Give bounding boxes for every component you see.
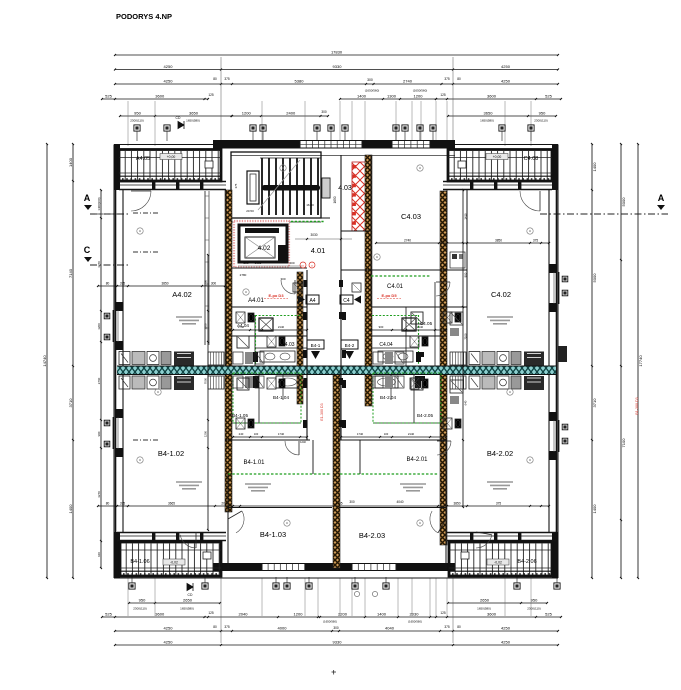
svg-text:3850: 3850	[495, 239, 502, 243]
svg-text:CD: CD	[188, 593, 193, 597]
svg-text:3600: 3600	[487, 612, 497, 617]
svg-text:2300(110): 2300(110)	[133, 607, 146, 611]
svg-text:1200: 1200	[242, 111, 252, 116]
svg-text:2400: 2400	[286, 111, 296, 116]
svg-text:4250: 4250	[164, 64, 174, 69]
svg-text:B4-2.02: B4-2.02	[487, 449, 513, 458]
svg-text:14740: 14740	[42, 355, 47, 367]
svg-text:C: C	[84, 245, 91, 255]
svg-text:375: 375	[533, 239, 539, 243]
svg-text:4040: 4040	[385, 626, 395, 631]
svg-text:B4-1.06: B4-1.06	[130, 559, 149, 565]
svg-text:C4.04: C4.04	[379, 342, 393, 348]
svg-text:A: A	[658, 193, 665, 203]
svg-text:950: 950	[531, 598, 538, 603]
svg-text:375: 375	[120, 502, 126, 506]
svg-text:5000: 5000	[621, 197, 626, 207]
svg-text:950: 950	[139, 598, 146, 603]
svg-text:A4: A4	[309, 298, 315, 304]
svg-text:3600: 3600	[487, 94, 497, 99]
svg-text:4250: 4250	[501, 64, 511, 69]
svg-text:7000: 7000	[204, 377, 208, 384]
svg-text:(1650/560): (1650/560)	[408, 620, 422, 624]
svg-text:375: 375	[224, 625, 230, 629]
svg-text:7100: 7100	[621, 438, 626, 448]
svg-text:1200: 1200	[204, 323, 208, 330]
svg-text:1400: 1400	[68, 504, 73, 514]
svg-text:A4.04: A4.04	[237, 323, 249, 328]
svg-text:4135: 4135	[335, 502, 342, 506]
svg-text:C4.03: C4.03	[401, 212, 421, 221]
svg-text:2200: 2200	[338, 612, 348, 617]
svg-text:525: 525	[105, 612, 112, 617]
svg-text:1200: 1200	[414, 94, 424, 99]
svg-text:+0,00: +0,00	[167, 155, 176, 159]
svg-text:2760: 2760	[97, 377, 101, 384]
svg-text:CD: CD	[176, 116, 181, 120]
svg-text:3600: 3600	[155, 94, 165, 99]
svg-text:2650: 2650	[480, 598, 490, 603]
svg-text:3600: 3600	[155, 612, 165, 617]
svg-text:375: 375	[234, 183, 238, 188]
svg-text:3665: 3665	[168, 502, 175, 506]
svg-text:2300(110): 2300(110)	[130, 119, 143, 123]
svg-text:300: 300	[211, 282, 217, 286]
svg-text:950: 950	[539, 111, 546, 116]
svg-text:16.00: 16.00	[306, 203, 314, 207]
svg-text:525: 525	[105, 94, 112, 99]
svg-text:4000: 4000	[278, 626, 288, 631]
svg-text:3710: 3710	[592, 398, 597, 408]
svg-text:375: 375	[444, 77, 450, 81]
svg-text:80: 80	[106, 282, 110, 286]
svg-text:900: 900	[379, 325, 384, 329]
svg-text:A4.02: A4.02	[172, 290, 192, 299]
svg-text:950: 950	[134, 111, 141, 116]
svg-text:1740: 1740	[357, 432, 364, 436]
svg-text:A4.05: A4.05	[136, 156, 150, 162]
svg-text:2780: 2780	[240, 273, 247, 277]
svg-text:1200: 1200	[204, 430, 208, 437]
svg-text:(1650/560): (1650/560)	[323, 620, 337, 624]
svg-text:A4.03: A4.03	[281, 342, 294, 348]
svg-text:125: 125	[208, 93, 214, 97]
svg-text:80: 80	[213, 77, 217, 81]
svg-text:1400: 1400	[68, 157, 73, 167]
svg-text:300: 300	[321, 110, 327, 114]
svg-text:B1-300 D3: B1-300 D3	[635, 397, 639, 414]
svg-text:17740: 17740	[638, 355, 643, 367]
svg-text:300: 300	[333, 626, 339, 630]
svg-text:B4-1: B4-1	[311, 343, 321, 348]
svg-text:2650: 2650	[183, 598, 193, 603]
svg-text:1650: 1650	[333, 196, 337, 203]
svg-text:940: 940	[97, 552, 101, 557]
svg-text:900: 900	[464, 272, 468, 277]
svg-text:PODORYS 4.NP: PODORYS 4.NP	[116, 12, 172, 21]
svg-text:-0,02: -0,02	[170, 561, 178, 565]
svg-text:4.01: 4.01	[311, 246, 326, 255]
svg-text:4250: 4250	[501, 640, 511, 645]
svg-text:1410: 1410	[464, 213, 468, 220]
svg-text:1740: 1740	[278, 432, 285, 436]
svg-text:B4-1.03: B4-1.03	[260, 530, 286, 539]
svg-text:4250: 4250	[501, 626, 511, 631]
svg-text:C4.01: C4.01	[387, 284, 404, 290]
svg-text:2140: 2140	[278, 325, 285, 329]
svg-text:4.02: 4.02	[258, 245, 271, 252]
svg-text:1300: 1300	[387, 94, 397, 99]
svg-text:640: 640	[464, 400, 468, 405]
svg-text:300: 300	[440, 239, 446, 243]
svg-text:3030: 3030	[310, 233, 317, 237]
svg-text:B4-1.04: B4-1.04	[273, 395, 290, 400]
svg-text:(1650/560): (1650/560)	[413, 89, 428, 93]
svg-text:525: 525	[545, 612, 552, 617]
svg-text:3850: 3850	[453, 502, 460, 506]
svg-text:3270: 3270	[97, 261, 101, 268]
svg-text:2740: 2740	[404, 239, 411, 243]
svg-text:B4-2.04: B4-2.04	[380, 395, 397, 400]
svg-text:C4: C4	[343, 298, 350, 304]
svg-text:80: 80	[106, 502, 110, 506]
svg-text:(1650/560): (1650/560)	[365, 89, 380, 93]
svg-text:4250: 4250	[164, 79, 174, 84]
svg-text:80: 80	[457, 625, 461, 629]
svg-text:B4-2.01: B4-2.01	[406, 457, 428, 463]
svg-text:1400: 1400	[592, 162, 597, 172]
svg-text:200: 200	[289, 261, 294, 265]
svg-text:20.50: 20.50	[246, 209, 254, 213]
svg-text:200: 200	[243, 261, 248, 265]
svg-text:1650(580): 1650(580)	[186, 119, 200, 123]
svg-text:9330: 9330	[333, 640, 343, 645]
svg-text:375: 375	[120, 282, 126, 286]
svg-text:5000: 5000	[592, 273, 597, 283]
svg-text:2300(110): 2300(110)	[534, 119, 547, 123]
svg-text:E-po D5: E-po D5	[381, 293, 397, 298]
svg-text:375: 375	[444, 625, 450, 629]
svg-text:3270: 3270	[97, 491, 101, 498]
svg-text:2300(110): 2300(110)	[527, 607, 540, 611]
svg-text:525: 525	[545, 94, 552, 99]
svg-text:B4-2: B4-2	[345, 343, 355, 348]
svg-text:80: 80	[457, 77, 461, 81]
svg-text:100: 100	[254, 432, 259, 436]
svg-text:1200: 1200	[97, 323, 101, 330]
svg-text:125: 125	[440, 611, 446, 615]
svg-text:1900: 1900	[255, 261, 262, 265]
svg-text:1650(580): 1650(580)	[180, 607, 194, 611]
svg-text:E1-300 D3: E1-300 D3	[320, 403, 324, 420]
svg-text:300: 300	[349, 500, 355, 504]
svg-text:C4.02: C4.02	[491, 290, 511, 299]
svg-text:2780: 2780	[204, 279, 208, 286]
svg-text:375: 375	[496, 502, 502, 506]
svg-text:7100: 7100	[464, 333, 468, 340]
svg-text:B4-1.02: B4-1.02	[158, 449, 184, 458]
svg-text:-0,02: -0,02	[494, 561, 502, 565]
svg-text:4.03: 4.03	[338, 185, 352, 192]
svg-text:17830: 17830	[331, 50, 343, 55]
svg-text:B4-2.05: B4-2.05	[417, 413, 434, 418]
svg-text:C4.08: C4.08	[524, 156, 539, 162]
svg-text:A: A	[84, 193, 91, 203]
svg-text:4040: 4040	[396, 500, 403, 504]
svg-text:80: 80	[213, 625, 217, 629]
svg-text:1200: 1200	[294, 612, 304, 617]
svg-text:7140: 7140	[68, 268, 73, 278]
svg-text:4250: 4250	[501, 79, 511, 84]
svg-text:125: 125	[440, 93, 446, 97]
svg-text:300: 300	[367, 78, 373, 82]
svg-text:B4-2.06: B4-2.06	[517, 559, 536, 565]
svg-text:240: 240	[239, 432, 244, 436]
svg-text:E-po D3: E-po D3	[268, 293, 284, 298]
svg-text:C4.05: C4.05	[420, 321, 433, 326]
svg-text:B4-1.01: B4-1.01	[243, 460, 265, 466]
svg-text:200: 200	[221, 502, 227, 506]
svg-text:3710: 3710	[68, 398, 73, 408]
svg-text:375: 375	[224, 77, 230, 81]
svg-text:3850: 3850	[161, 282, 168, 286]
svg-text:1650(580): 1650(580)	[477, 607, 491, 611]
svg-text:2040: 2040	[239, 612, 249, 617]
svg-text:1240: 1240	[300, 440, 306, 444]
svg-text:4250: 4250	[164, 626, 174, 631]
svg-text:125: 125	[208, 611, 214, 615]
svg-text:1400: 1400	[377, 612, 387, 617]
svg-text:4250: 4250	[164, 640, 174, 645]
svg-text:1400(960): 1400(960)	[97, 197, 101, 210]
svg-text:1400: 1400	[357, 94, 367, 99]
svg-text:+0,00: +0,00	[493, 155, 502, 159]
svg-text:2030: 2030	[410, 612, 420, 617]
svg-text:B4-2.03: B4-2.03	[359, 531, 385, 540]
svg-text:2740: 2740	[403, 79, 413, 84]
svg-text:B4-1.05: B4-1.05	[232, 413, 249, 418]
svg-text:3650: 3650	[484, 111, 494, 116]
svg-text:A4.01: A4.01	[248, 298, 264, 304]
svg-text:9330: 9330	[333, 64, 343, 69]
svg-text:900: 900	[97, 431, 101, 436]
svg-text:100: 100	[384, 432, 389, 436]
svg-text:3650: 3650	[189, 111, 199, 116]
svg-text:5380: 5380	[295, 79, 305, 84]
svg-text:1400: 1400	[592, 504, 597, 514]
svg-text:2140: 2140	[408, 432, 415, 436]
svg-text:1650(580): 1650(580)	[480, 119, 494, 123]
